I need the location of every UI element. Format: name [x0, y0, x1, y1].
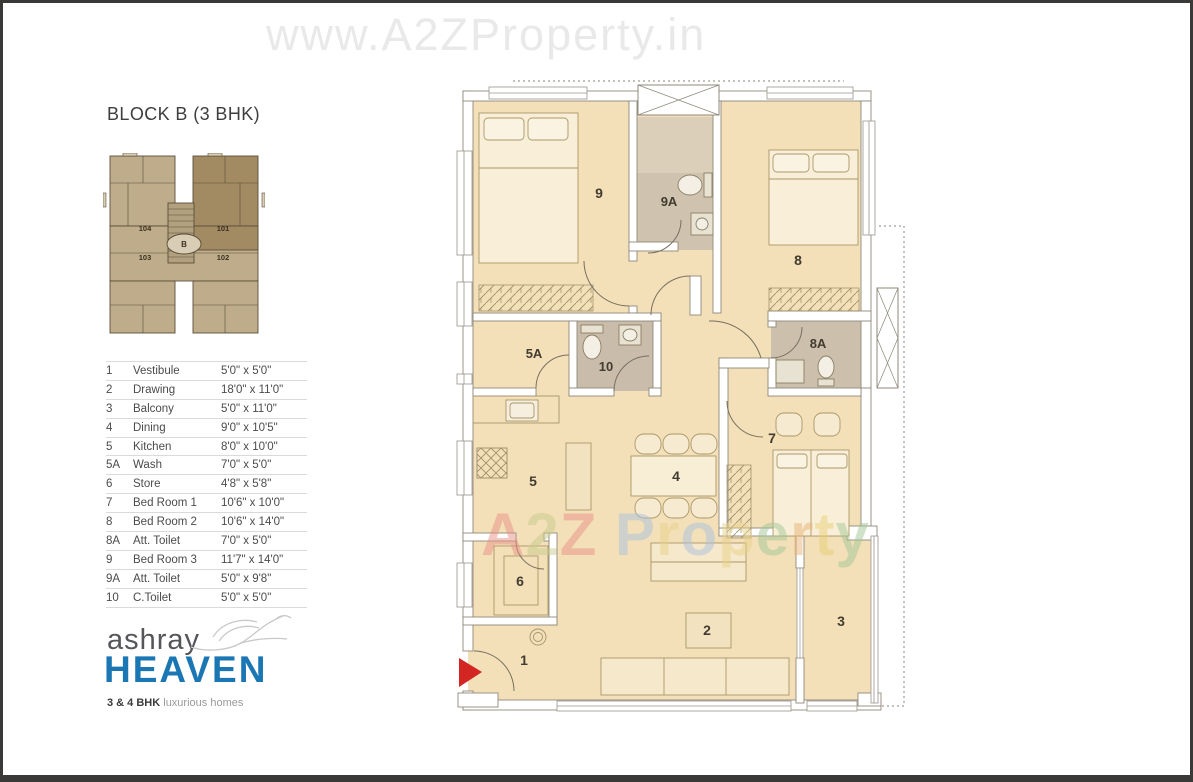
legend-room-number: 2: [106, 384, 133, 396]
watermark-letter: o: [680, 501, 718, 568]
top-duct-shaft: [638, 85, 719, 115]
balcony-railing: [871, 536, 878, 703]
legend-room-name: Store: [133, 478, 221, 490]
bed-room1-chair: [814, 413, 840, 436]
watermark-letter: r: [790, 501, 814, 568]
window: [807, 701, 857, 711]
logo-tagline-bold: 3 & 4 BHK: [107, 697, 160, 709]
keyplan-unit-102: 102: [217, 253, 230, 262]
watermark-letter: [597, 501, 615, 568]
keyplan-wing-bottom-left: [110, 281, 175, 333]
keyplan-block-label: B: [181, 240, 187, 249]
legend-room-size: 7'0" x 5'0": [221, 459, 307, 471]
window: [457, 282, 472, 326]
toilet-9a-duct-floor: [637, 117, 713, 173]
legend-row: 1 Vestibule 5'0" x 5'0": [106, 362, 307, 381]
page-title: BLOCK B (3 BHK): [107, 104, 260, 125]
keyplan-wing-top-left: [110, 156, 175, 226]
legend-room-number: 5A: [106, 459, 133, 471]
legend-room-size: 5'0" x 5'0": [221, 365, 307, 377]
room-label-9a: 9A: [661, 194, 678, 209]
legend-room-name: Wash: [133, 459, 221, 471]
room-label-9: 9: [595, 185, 603, 201]
legend-room-size: 4'8" x 5'8": [221, 478, 307, 490]
window: [489, 87, 587, 99]
legend-room-size: 5'0" x 9'8": [221, 573, 307, 585]
legend-room-name: Att. Toilet: [133, 573, 221, 585]
watermark-letter: 2: [525, 501, 559, 568]
legend-room-name: C.Toilet: [133, 592, 221, 604]
room-label-8: 8: [794, 252, 802, 268]
keyplan-wing-bottom-right: [193, 281, 258, 333]
window: [457, 563, 472, 607]
room-label-1: 1: [520, 652, 528, 668]
legend-row: 9 Bed Room 3 11'7" x 14'0": [106, 551, 307, 570]
legend-room-name: Bed Room 3: [133, 554, 221, 566]
legend-room-number: 4: [106, 422, 133, 434]
keyplan-wing-top-right: [193, 156, 258, 226]
room-legend-table: 1 Vestibule 5'0" x 5'0" 2 Drawing 18'0" …: [106, 361, 307, 608]
legend-room-number: 3: [106, 403, 133, 415]
sliding-window-balcony: [797, 568, 803, 658]
room-label-4: 4: [672, 468, 680, 484]
logo-tagline: 3 & 4 BHK luxurious homes: [107, 697, 243, 709]
legend-room-name: Bed Room 2: [133, 516, 221, 528]
keyplan-unit-103: 103: [139, 253, 152, 262]
wardrobe-bedroom3: [479, 285, 593, 311]
legend-room-number: 1: [106, 365, 133, 377]
room-label-3: 3: [837, 613, 845, 629]
legend-room-name: Bed Room 1: [133, 497, 221, 509]
legend-room-number: 6: [106, 478, 133, 490]
logo-tagline-rest: luxurious homes: [163, 697, 243, 709]
bed-room3-bed: [479, 113, 578, 263]
window: [457, 441, 472, 495]
bed-room1-chair: [776, 413, 802, 436]
key-plan: 104 101 103 102 B: [103, 153, 265, 339]
room-label-7: 7: [768, 430, 776, 446]
legend-room-size: 10'6" x 10'0": [221, 497, 307, 509]
legend-room-number: 9: [106, 554, 133, 566]
legend-row: 7 Bed Room 1 10'6" x 10'0": [106, 494, 307, 513]
watermark-letter: P: [615, 501, 656, 568]
legend-room-size: 18'0" x 11'0": [221, 384, 307, 396]
legend-room-number: 8A: [106, 535, 133, 547]
watermark-letter: Z: [560, 501, 598, 568]
keyplan-unit-104: 104: [139, 224, 152, 233]
room-label-10: 10: [599, 359, 613, 374]
keyplan-unit-101: 101: [217, 224, 230, 233]
legend-row: 5 Kitchen 8'0" x 10'0": [106, 438, 307, 457]
watermark-center: A2Z Property: [481, 500, 870, 569]
floor-plan: 9 9A 8 5A 10 8A 5 4 7 6 1 2 3: [456, 73, 956, 718]
watermark-letter: y: [835, 501, 869, 568]
bed-room2-bed: [769, 150, 858, 245]
room-label-2: 2: [703, 622, 711, 638]
legend-room-name: Att. Toilet: [133, 535, 221, 547]
room-label-6: 6: [516, 573, 524, 589]
legend-room-name: Vestibule: [133, 365, 221, 377]
watermark-top: www.A2ZProperty.in: [266, 9, 706, 61]
window: [557, 701, 791, 711]
legend-room-name: Balcony: [133, 403, 221, 415]
logo-name: HEAVEN: [104, 651, 267, 688]
legend-row: 8 Bed Room 2 10'6" x 14'0": [106, 513, 307, 532]
brochure-page: www.A2ZProperty.in BLOCK B (3 BHK) 104 1…: [0, 0, 1193, 782]
window: [457, 151, 472, 255]
legend-room-size: 5'0" x 11'0": [221, 403, 307, 415]
watermark-letter: A: [481, 501, 525, 568]
window: [767, 87, 853, 99]
legend-room-size: 8'0" x 10'0": [221, 441, 307, 453]
room-label-5a: 5A: [526, 346, 543, 361]
window: [863, 121, 875, 235]
right-duct-shaft: [877, 288, 898, 388]
legend-room-name: Dining: [133, 422, 221, 434]
watermark-letter: t: [814, 501, 835, 568]
kitchen-wash-grate: [477, 448, 507, 478]
legend-room-number: 9A: [106, 573, 133, 585]
legend-row: 8A Att. Toilet 7'0" x 5'0": [106, 532, 307, 551]
legend-room-size: 10'6" x 14'0": [221, 516, 307, 528]
watermark-letter: r: [656, 501, 680, 568]
room-label-5: 5: [529, 473, 537, 489]
legend-room-name: Kitchen: [133, 441, 221, 453]
legend-row: 3 Balcony 5'0" x 11'0": [106, 400, 307, 419]
legend-room-number: 7: [106, 497, 133, 509]
legend-row: 4 Dining 9'0" x 10'5": [106, 419, 307, 438]
legend-room-size: 5'0" x 5'0": [221, 592, 307, 604]
room-label-8a: 8A: [810, 336, 827, 351]
watermark-letter: p: [718, 501, 756, 568]
legend-row: 10 C.Toilet 5'0" x 5'0": [106, 589, 307, 608]
legend-row: 2 Drawing 18'0" x 11'0": [106, 381, 307, 400]
legend-row: 6 Store 4'8" x 5'8": [106, 475, 307, 494]
wardrobe-bedroom2: [769, 288, 859, 311]
legend-room-size: 7'0" x 5'0": [221, 535, 307, 547]
legend-room-size: 11'7" x 14'0": [221, 554, 307, 566]
legend-room-number: 8: [106, 516, 133, 528]
watermark-letter: e: [756, 501, 790, 568]
legend-room-number: 5: [106, 441, 133, 453]
legend-room-name: Drawing: [133, 384, 221, 396]
legend-room-number: 10: [106, 592, 133, 604]
legend-room-size: 9'0" x 10'5": [221, 422, 307, 434]
legend-row: 5A Wash 7'0" x 5'0": [106, 456, 307, 475]
legend-row: 9A Att. Toilet 5'0" x 9'8": [106, 570, 307, 589]
window: [457, 374, 472, 384]
